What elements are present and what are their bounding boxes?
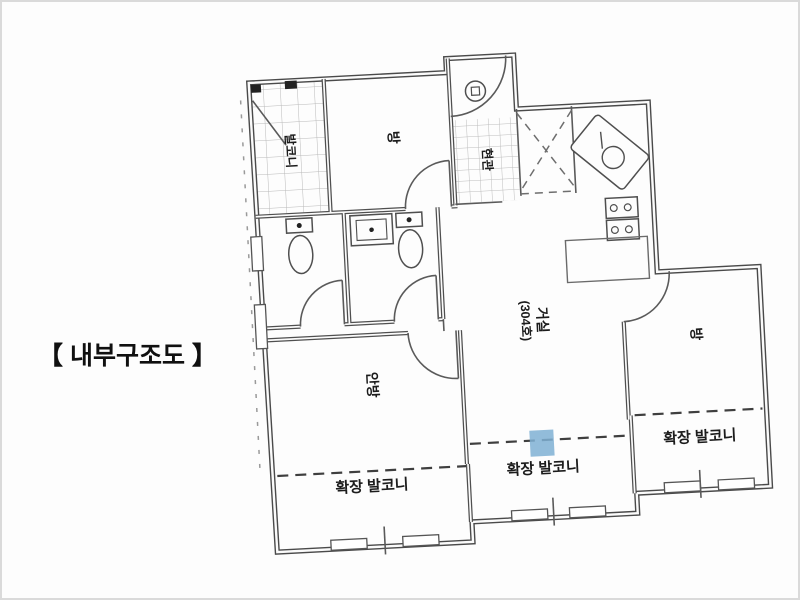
toilet-bowl-left-icon [288, 235, 314, 274]
label-master-bedroom: 안방 [364, 372, 381, 399]
kitchen-sink-icon [570, 114, 651, 191]
label-unit-number: (304호) [517, 300, 533, 341]
top-room-door [403, 161, 451, 209]
label-balcony-left: 확장 발코니 [335, 475, 409, 497]
toilet-bowl-right-icon [398, 229, 424, 268]
entry-door-symbol-icon [465, 81, 486, 102]
label-upper-balcony: 발코니 [282, 133, 299, 168]
screenshot-root: 【 내부구조도 】 [0, 0, 800, 600]
wall-mark-1 [251, 84, 261, 93]
label-balcony-right: 확장 발코니 [663, 426, 737, 448]
label-top-room: 방 [385, 131, 402, 145]
wall-mark-2 [285, 80, 297, 89]
bath-right-door [392, 275, 438, 321]
kitchen-counter [565, 236, 649, 282]
floor-plan-group: 발코니 방 현관 거실 (304호) 안방 방 확장 발코니 확장 발코니 확장… [239, 43, 773, 561]
bathroom-fixtures [286, 212, 425, 274]
bath-left-door [298, 280, 344, 326]
label-right-room: 방 [688, 327, 705, 341]
blue-highlight-marker [529, 430, 554, 457]
label-entrance: 현관 [479, 148, 495, 172]
windows [251, 211, 757, 560]
shaft-void-x [517, 110, 576, 194]
label-balcony-center: 확장 발코니 [506, 457, 580, 479]
floor-plan-svg: 발코니 방 현관 거실 (304호) 안방 방 확장 발코니 확장 발코니 확장… [0, 0, 800, 600]
master-bedroom-door [408, 330, 458, 380]
label-living-room: 거실 [534, 307, 551, 334]
